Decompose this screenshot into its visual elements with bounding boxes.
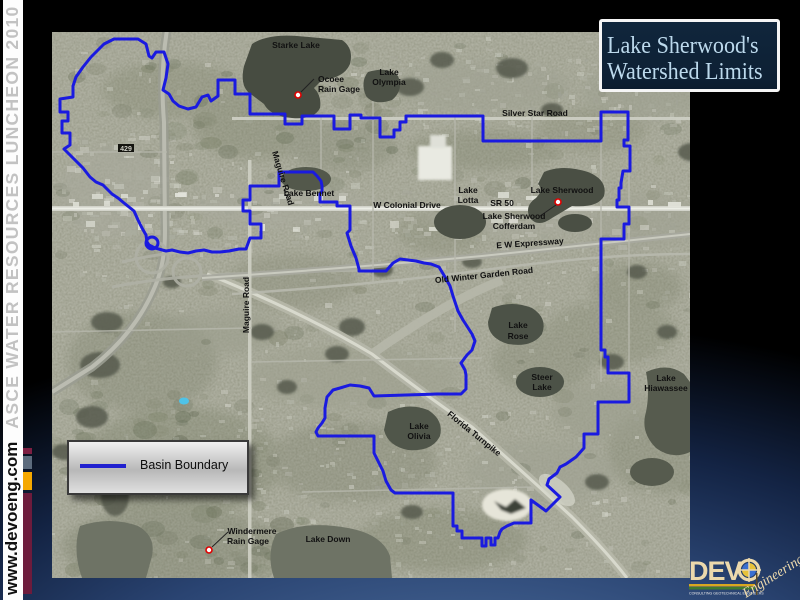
svg-text:Rain Gage: Rain Gage (227, 536, 269, 546)
svg-text:Rain Gage: Rain Gage (318, 84, 360, 94)
svg-text:Ocoee: Ocoee (318, 74, 344, 84)
svg-text:Olivia: Olivia (407, 431, 430, 441)
svg-text:Lake: Lake (379, 67, 399, 77)
svg-text:Lake Down: Lake Down (306, 534, 351, 544)
svg-text:Windermere: Windermere (227, 526, 276, 536)
svg-text:Hiawassee: Hiawassee (644, 383, 688, 393)
svg-text:Lake: Lake (508, 320, 528, 330)
svg-text:W Colonial Drive: W Colonial Drive (373, 200, 441, 210)
svg-text:Lake Sherwood: Lake Sherwood (531, 185, 594, 195)
svg-text:Starke Lake: Starke Lake (272, 40, 320, 50)
svg-text:Steer: Steer (531, 372, 553, 382)
svg-text:Cofferdam: Cofferdam (493, 221, 536, 231)
svg-text:Lake Sherwood: Lake Sherwood (483, 211, 546, 221)
svg-text:Lake: Lake (532, 382, 552, 392)
svg-text:Rose: Rose (508, 331, 529, 341)
svg-text:DEV: DEV (689, 556, 743, 586)
svg-text:Lake: Lake (458, 185, 478, 195)
svg-text:Lake: Lake (656, 373, 676, 383)
svg-text:Silver Star Road: Silver Star Road (502, 108, 568, 118)
svg-text:SR 50: SR 50 (490, 198, 514, 208)
svg-text:429: 429 (120, 146, 132, 153)
svg-text:Lake: Lake (409, 421, 429, 431)
svg-text:Lotta: Lotta (458, 195, 479, 205)
svg-text:Lake Bennet: Lake Bennet (284, 188, 335, 198)
svg-text:Olympia: Olympia (372, 77, 406, 87)
svg-text:Maguire Road: Maguire Road (241, 277, 251, 333)
